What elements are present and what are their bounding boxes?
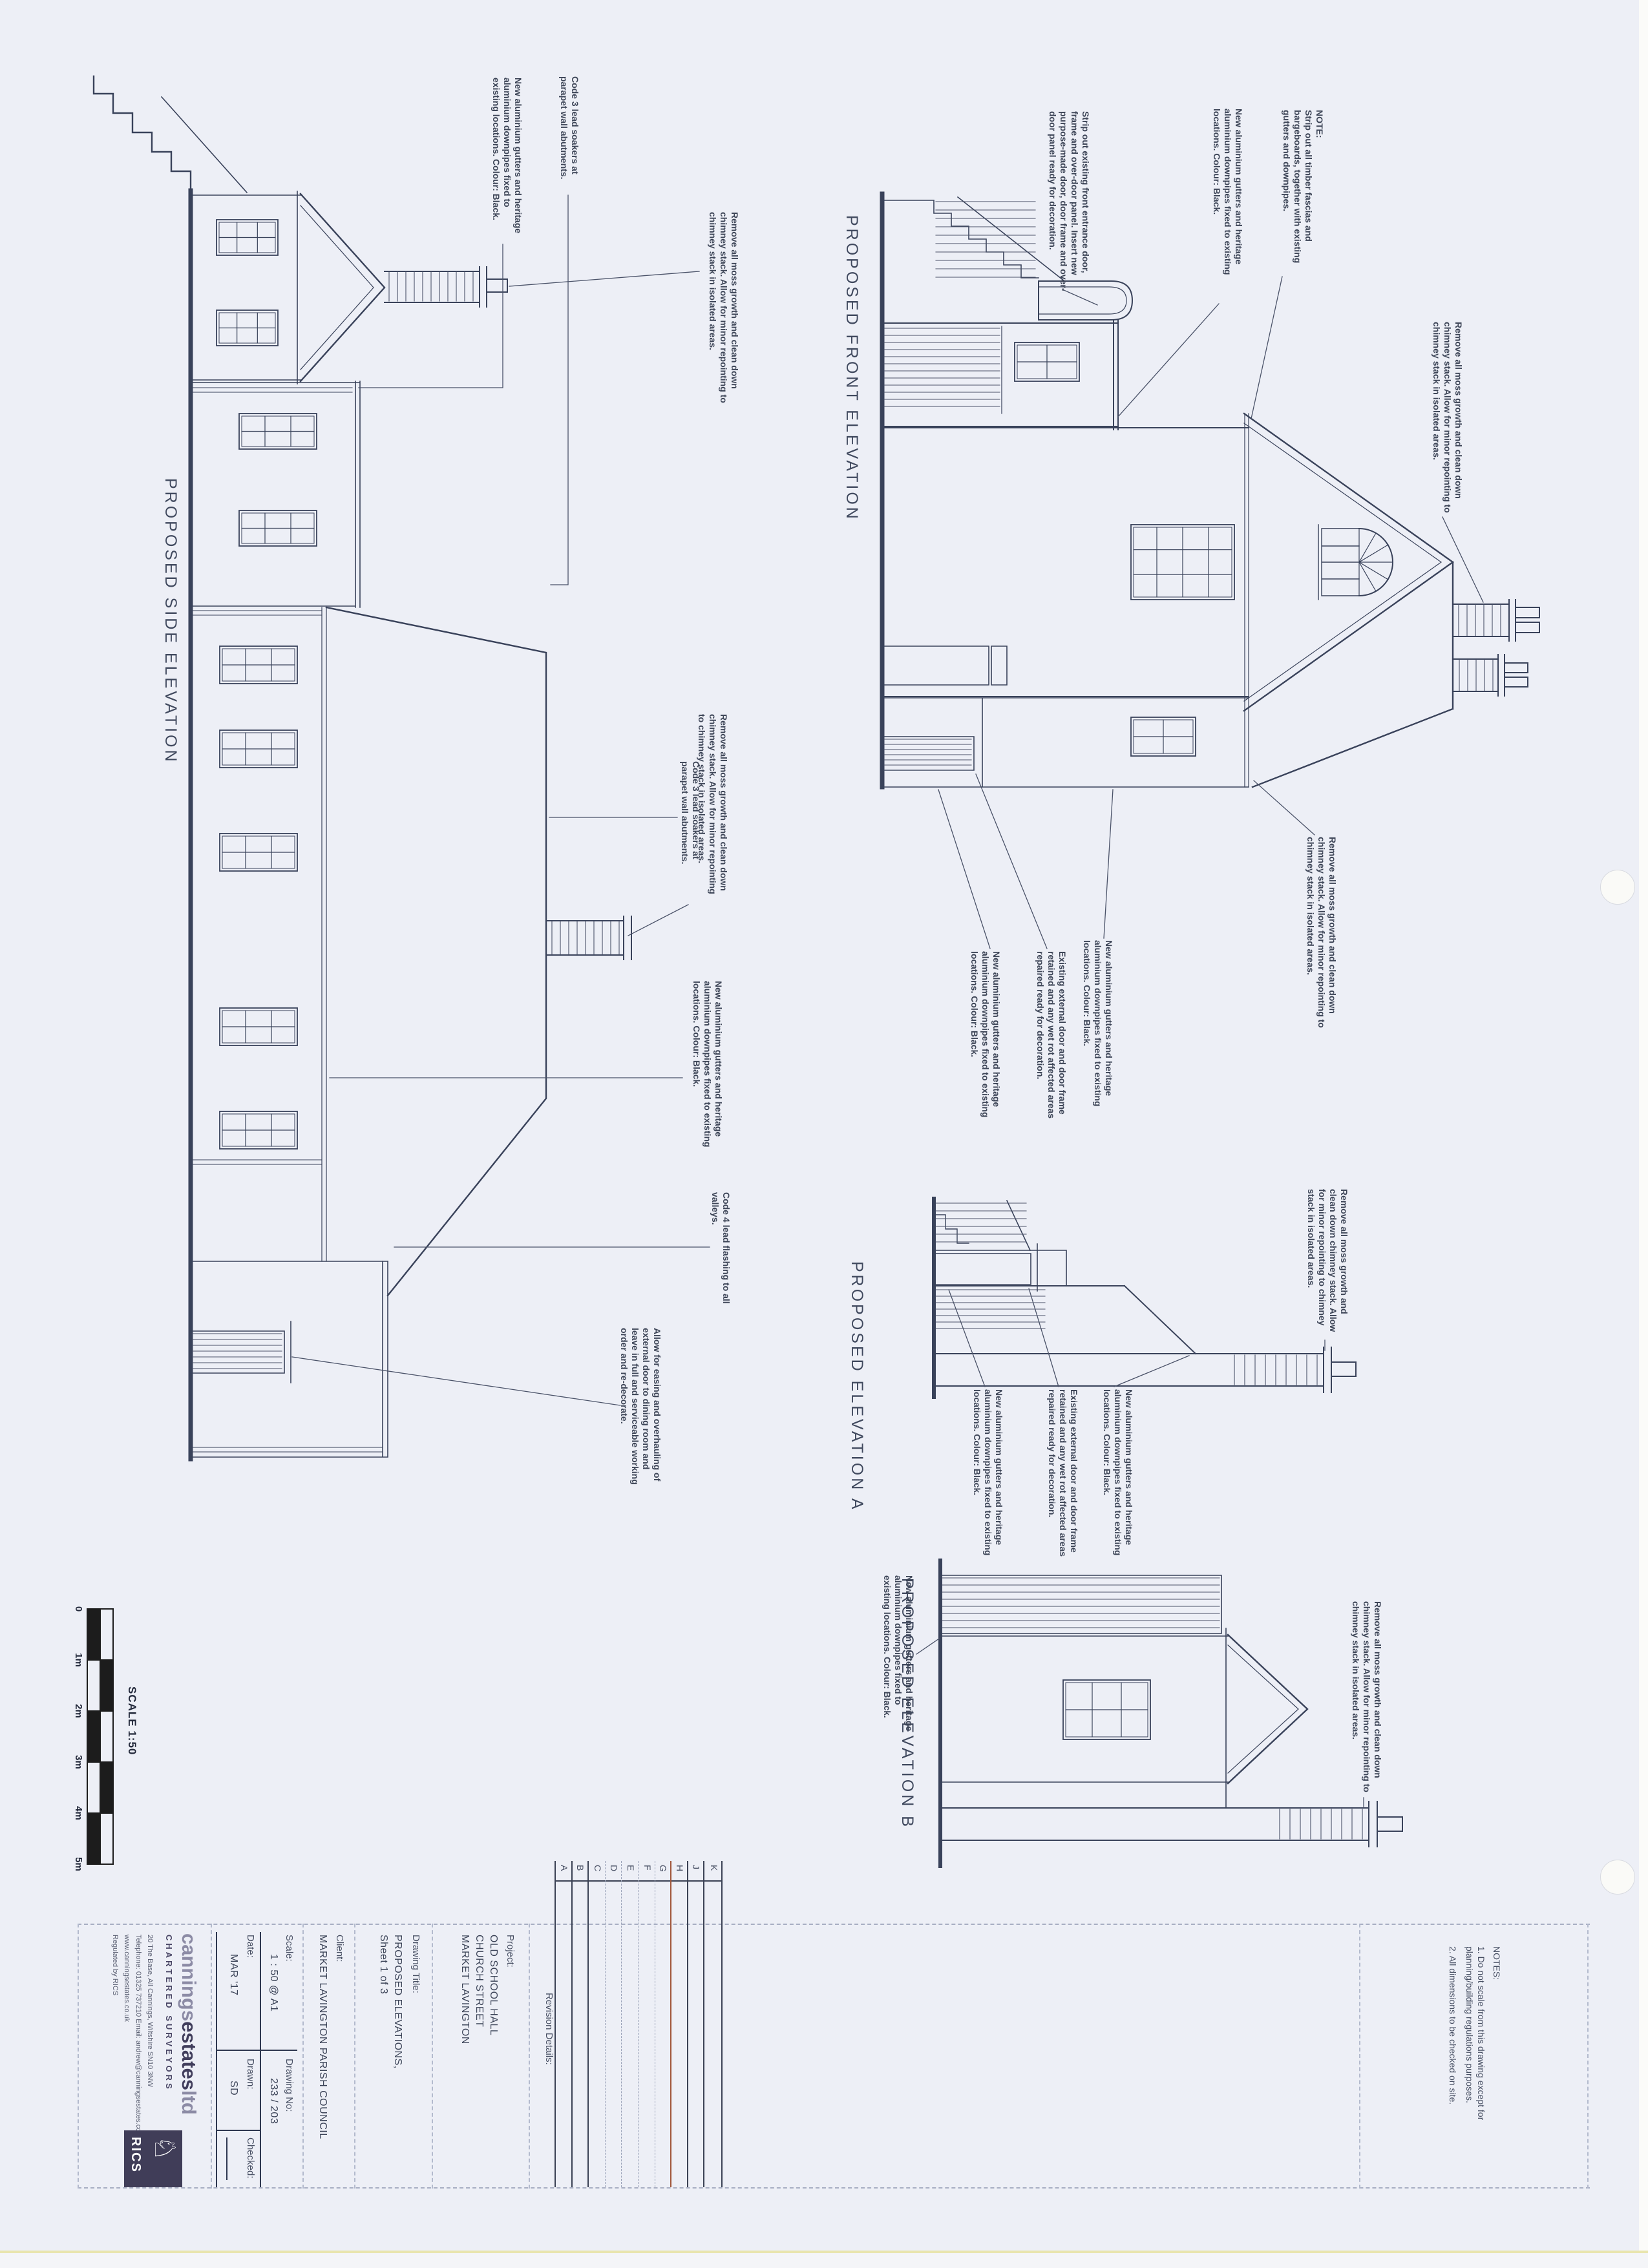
- revision-row-letter: D: [609, 1865, 619, 1871]
- scanned-drawing-page: { "views": { "front": "PROPOSED FRONT EL…: [0, 0, 1648, 2268]
- annotation-door-retained: Existing external door and door frame re…: [1035, 951, 1068, 1139]
- drawing-title-label: Drawing Title:: [410, 1935, 421, 1993]
- revision-row-letter: K: [709, 1865, 719, 1871]
- project-value: OLD SCHOOL HALL CHURCH STREET MARKET LAV…: [458, 1935, 500, 2167]
- fields-rule: [216, 2130, 260, 2131]
- drawn-value: SD: [227, 2081, 239, 2095]
- firm-address: 20 The Base, All Cannings, Wiltshire SN1…: [146, 1935, 154, 2087]
- revision-row-letter: H: [675, 1865, 685, 1871]
- note-item: 1. Do not scale from this drawing except…: [1464, 1946, 1487, 2172]
- annotation-gutters: New aluminium gutters and heritage alumi…: [969, 951, 1002, 1145]
- revision-row-letter: F: [642, 1865, 653, 1871]
- front-elevation-title: PROPOSED FRONT ELEVATION: [842, 215, 861, 521]
- annotation-gutters: New aluminium gutters and heritage alumi…: [491, 78, 523, 239]
- revision-table-label: Revision Details:: [544, 1993, 555, 2065]
- scale-bar-title: SCALE 1:50: [125, 1686, 138, 1755]
- scale-bar: [87, 1609, 113, 1864]
- firm-website: www.canningsestates.co.uk: [123, 1935, 131, 2022]
- checked-label: Checked:: [245, 2137, 256, 2178]
- elevation-linework: [0, 0, 1648, 2268]
- title-block-border: [78, 2187, 1590, 2189]
- firm-logotype: canningsestatesltd: [177, 1933, 200, 2115]
- general-notes: NOTES: 1. Do not scale from this drawing…: [1442, 1946, 1503, 2172]
- scale-label: Scale:: [284, 1935, 295, 1962]
- revision-row-letter: J: [691, 1865, 701, 1869]
- date-value: MAR '17: [227, 1954, 239, 1995]
- drawing-no-label: Drawing No:: [284, 2059, 295, 2112]
- annotation-gutters: New aluminium gutters and heritage alumi…: [971, 1389, 1004, 1583]
- revision-row-letter: C: [593, 1865, 603, 1871]
- title-block-border: [78, 1924, 1590, 1925]
- title-block-rule: [1587, 1924, 1589, 2189]
- side-elevation-title: PROPOSED SIDE ELEVATION: [161, 478, 180, 764]
- revision-row-letter: A: [559, 1865, 569, 1871]
- revision-row-letter: G: [658, 1865, 668, 1872]
- revision-row-letter: E: [626, 1865, 636, 1871]
- firm-name-part: cannings: [178, 1933, 200, 2021]
- title-block-rule: [354, 1924, 355, 2189]
- title-block-rule: [529, 1924, 530, 2189]
- fields-rule: [216, 1932, 217, 2187]
- fields-rule: [260, 1932, 261, 2187]
- annotation-fascias-note: NOTE: Strip out all timber fascias and b…: [1281, 110, 1325, 275]
- revision-row-letter: B: [575, 1865, 586, 1871]
- firm-regulated: Regulated by RICS: [111, 1935, 119, 1995]
- elevation-a-title: PROPOSED ELEVATION A: [847, 1261, 866, 1512]
- note-item: 2. All dimensions to be checked on site.: [1447, 1946, 1459, 2172]
- drawing-no-value: 233 / 203: [268, 2078, 279, 2124]
- firm-contact: Telephone: 01325 737210 Email: andrew@ca…: [134, 1935, 142, 2141]
- title-block-rule: [432, 1924, 433, 2189]
- title-block-rule: [211, 1924, 212, 2189]
- client-value: MARKET LAVINGTON PARISH COUNCIL: [317, 1935, 328, 2180]
- title-block-rule: [78, 1924, 79, 2189]
- scale-value: 1 : 50 @ A1: [268, 1954, 279, 2011]
- rics-lion-icon: ♘: [150, 2136, 178, 2161]
- checked-blank: [226, 2137, 227, 2180]
- firm-tagline: CHARTERED SURVEYORS: [164, 1935, 174, 2092]
- scale-tick: 2m: [73, 1697, 84, 1725]
- elevation-a-drawing: [934, 1199, 1356, 1397]
- scale-tick: 1m: [73, 1646, 84, 1674]
- annotation-gutters: New aluminium gutters and heritage alumi…: [691, 981, 724, 1175]
- annotation-moss-growth: Remove all moss growth and clean down ch…: [707, 212, 740, 406]
- firm-name-part: estates: [178, 2021, 200, 2090]
- scale-tick: 5m: [73, 1850, 84, 1878]
- client-label: Client:: [334, 1935, 345, 1962]
- rics-logo: ♘ RICS: [124, 2130, 182, 2187]
- annotation-gutters: New aluminium gutters and heritage alumi…: [1081, 940, 1114, 1134]
- annotation-gutters: New aluminium gutters and heritage alumi…: [1101, 1389, 1134, 1583]
- annotation-door-retained: Existing external door and door frame re…: [1046, 1389, 1079, 1577]
- annotation-lead-soakers: Code 3 lead soakers at parapet wall abut…: [679, 761, 701, 881]
- scale-tick: 0: [73, 1595, 84, 1623]
- project-label: Project:: [505, 1935, 516, 1968]
- drawn-label: Drawn:: [245, 2059, 256, 2090]
- annotation-moss-growth: Remove all moss growth and clean down ch…: [1350, 1601, 1383, 1795]
- revision-table: K J H G F E D C B A: [555, 1861, 723, 2187]
- rics-logo-text: RICS: [128, 2137, 143, 2173]
- annotation-lead-soakers: Code 3 lead soakers at parapet wall abut…: [558, 76, 580, 193]
- drawing-title-value: PROPOSED ELEVATIONS, Sheet 1 of 3: [376, 1935, 405, 2167]
- annotation-entrance-door: Strip out existing front entrance door, …: [1047, 111, 1091, 292]
- annotation-gutters: New aluminium gutters and heritage alumi…: [1211, 109, 1244, 302]
- annotation-easing-door: Allow for easing and overhauling of exte…: [618, 1328, 662, 1489]
- date-label: Date:: [245, 1935, 256, 1958]
- firm-name-part: ltd: [178, 2090, 200, 2115]
- fields-rule: [216, 2050, 297, 2051]
- annotation-lead-flashing: Code 4 lead flashing to all valleys.: [710, 1192, 732, 1305]
- scale-tick: 4m: [73, 1799, 84, 1827]
- annotation-moss-growth: Remove all moss growth and clean down ch…: [1431, 322, 1464, 516]
- side-elevation-drawing: [94, 76, 631, 1459]
- drawing-sheet: PROPOSED FRONT ELEVATION PROPOSED SIDE E…: [0, 0, 1648, 2268]
- title-block-rule: [1359, 1924, 1360, 2189]
- title-block-rule: [302, 1924, 304, 2189]
- notes-heading: NOTES:: [1491, 1946, 1503, 2172]
- annotation-moss-growth: Remove all moss growth and clean down ch…: [1305, 1189, 1349, 1338]
- scale-tick: 3m: [73, 1748, 84, 1776]
- annotation-moss-growth: Remove all moss growth and clean down ch…: [1305, 837, 1338, 1031]
- annotation-gutters: New aluminium gutters and heritage alumi…: [882, 1575, 914, 1737]
